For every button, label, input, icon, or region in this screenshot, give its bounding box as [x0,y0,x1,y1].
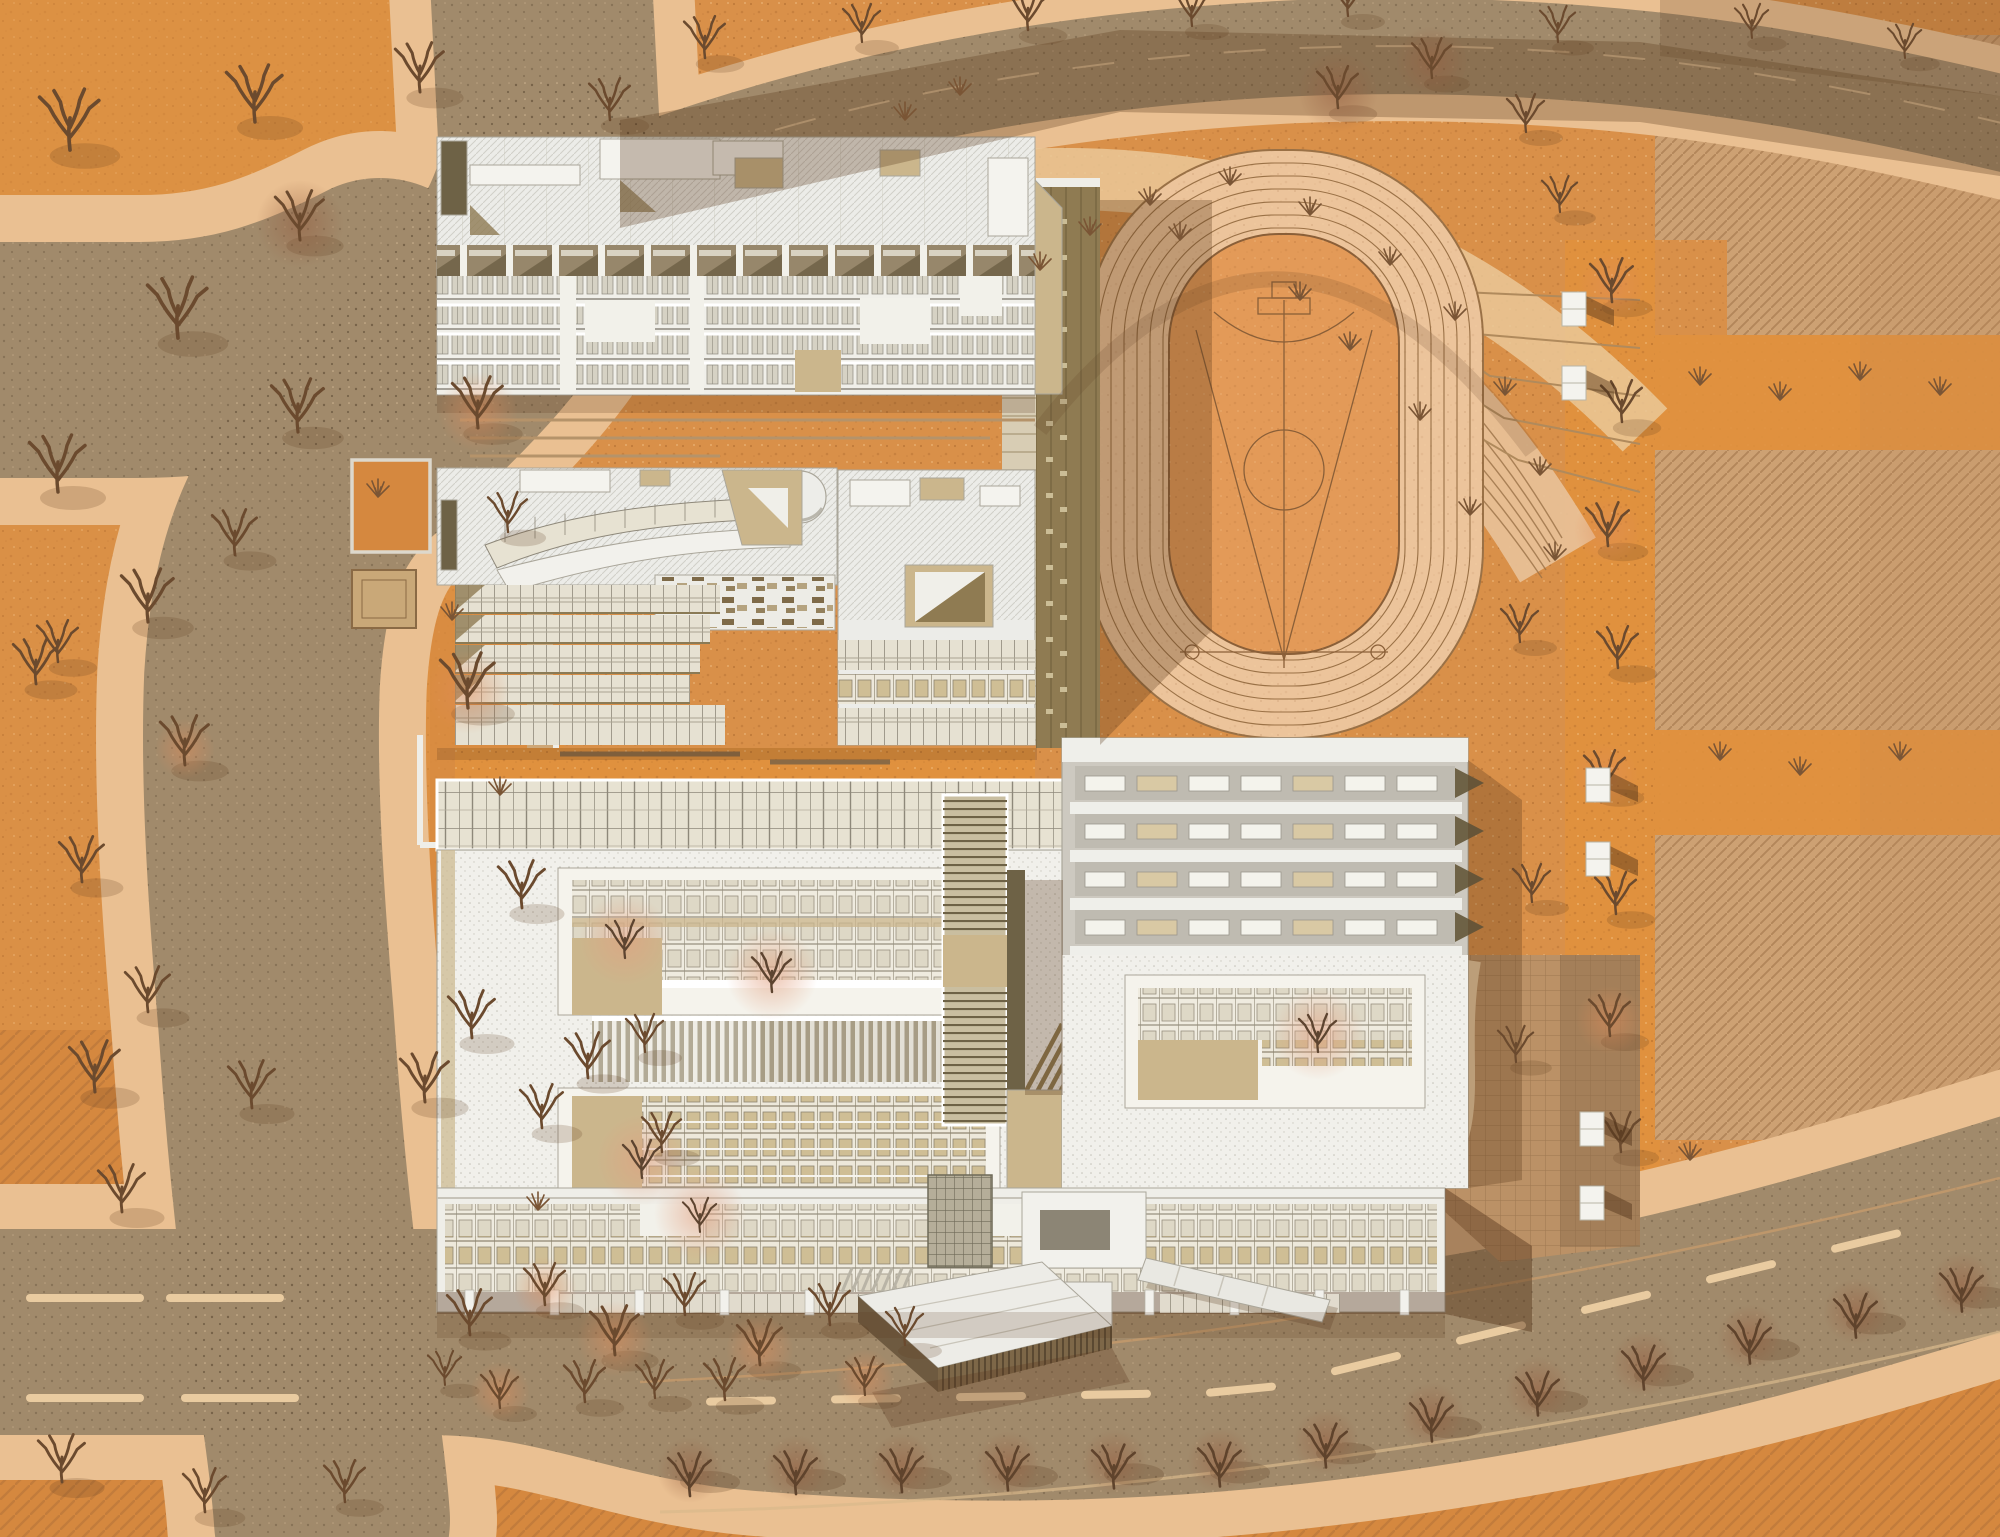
piloti [1145,1290,1154,1315]
roof-monitor-window [1085,776,1125,791]
roof-monitor-window [1241,824,1281,839]
roof-monitor-window [1085,920,1125,935]
roof-monitor-window [1293,920,1333,935]
entrance-bay [928,1175,992,1267]
roof-monitor-window [1085,872,1125,887]
piloti [720,1290,729,1315]
roof-monitor-window [1397,920,1437,935]
roof-monitor-window [1345,824,1385,839]
roof-monitor-window [1293,872,1333,887]
balcony-row [437,245,1035,276]
roof-monitor-window [1241,920,1281,935]
roof-monitor-window [1137,920,1177,935]
roof-monitor-window [1137,872,1177,887]
roof-monitor-window [1345,776,1385,791]
site-plan: Aerial axonometric site plan of a school… [0,0,2000,1537]
roof-monitor-window [1137,824,1177,839]
gymnasium-building [1062,738,1484,1188]
site-plan-svg: Aerial axonometric site plan of a school… [0,0,2000,1537]
roof-monitor-window [1241,872,1281,887]
roof-monitor-window [1189,776,1229,791]
roof-monitor-window [1189,872,1229,887]
lane-dash [1085,1394,1147,1395]
roof-monitor-window [1345,920,1385,935]
roof-monitor-window [1085,824,1125,839]
roof-monitor-window [1189,920,1229,935]
roof-monitor-window [1137,776,1177,791]
northeast-wing [838,470,1035,745]
piloti [1400,1290,1409,1315]
roof-monitor-window [1189,824,1229,839]
roof-monitor-window [1397,824,1437,839]
roof-monitor-window [1241,776,1281,791]
roof-monitor-window [1293,776,1333,791]
roof-monitor-window [1293,824,1333,839]
roof-monitor-window [1397,872,1437,887]
roof-monitor-window [1397,776,1437,791]
roof-monitor-window [1345,872,1385,887]
